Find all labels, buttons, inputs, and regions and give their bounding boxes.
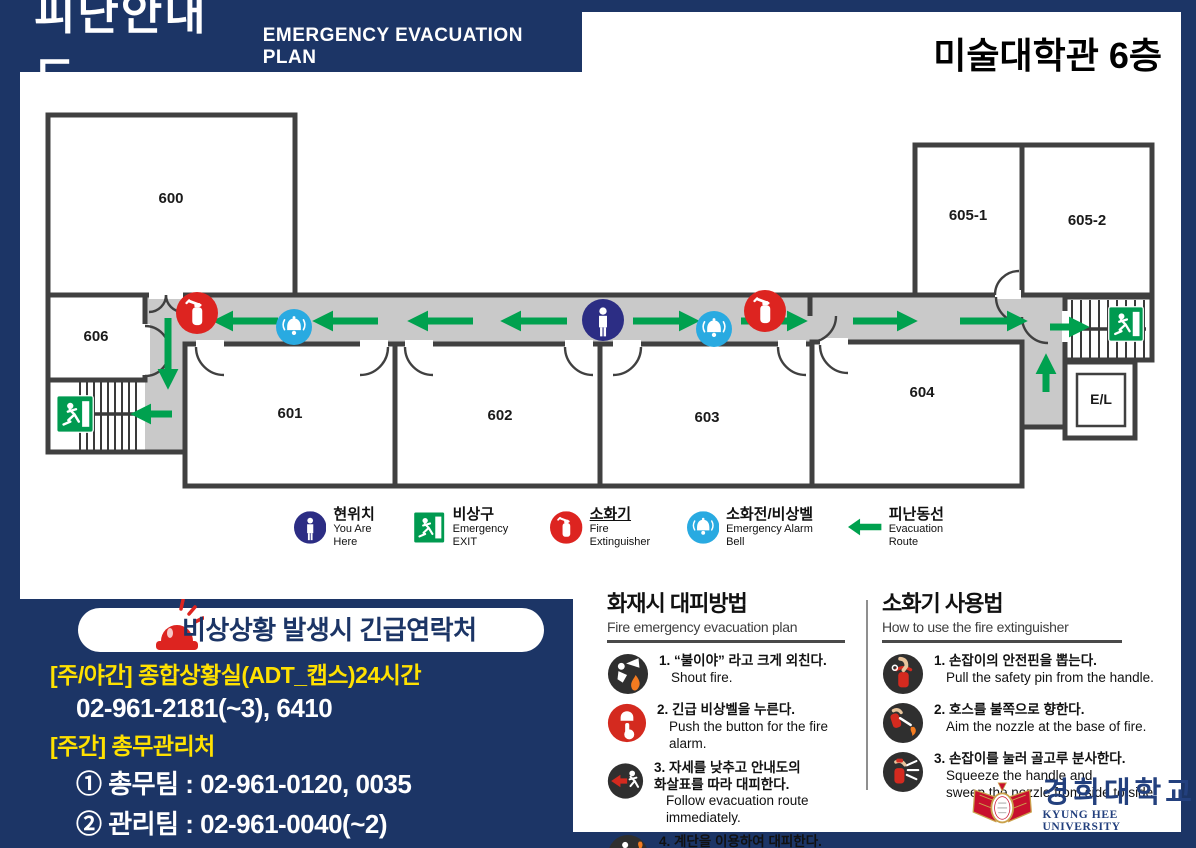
squeeze-sweep-icon <box>882 751 924 793</box>
legend-label-en: Emergency EXIT <box>453 523 535 548</box>
contact-line: [주간] 총무관리처 <box>50 727 573 761</box>
step-text-ko: 2. 호스를 불쪽으로 향한다. <box>934 702 1146 719</box>
fire-extinguisher-icon <box>550 511 582 544</box>
emergency-exit-icon <box>57 396 93 432</box>
you-are-here-icon <box>294 511 326 544</box>
university-name-ko: 경희대학교 <box>1043 778 1196 808</box>
room-label: 600 <box>158 190 183 207</box>
contact-line: ② 관리팀 : 02-961-0040(~2) <box>76 804 573 841</box>
legend-emergency-exit: 비상구 Emergency EXIT <box>413 506 534 549</box>
step-text-en: Pull the safety pin from the handle. <box>946 670 1154 687</box>
university-logo: 경희대학교 KYUNG HEE UNIVERSITY <box>970 778 1196 833</box>
contacts-banner: 비상상황 발생시 긴급연락처 <box>78 608 544 652</box>
elevator-label: E/L <box>1090 391 1112 407</box>
legend-fire-extinguisher: 소화기 Fire Extinguisher <box>550 506 670 549</box>
page-title: 피난안내도 <box>34 0 251 107</box>
alarm-bell-icon <box>687 511 719 544</box>
extinguisher-guide-panel: 소화기 사용법 How to use the fire extinguisher… <box>882 586 1182 809</box>
emergency-exit-icon <box>1109 307 1144 342</box>
fire-plan-title: 화재시 대피방법 <box>607 586 859 618</box>
step-text-ko: 3. 자세를 낮추고 안내도의 화살표를 따라 대피한다. <box>654 760 859 794</box>
university-crest-icon <box>970 778 1035 833</box>
rule-line <box>882 640 1122 643</box>
alarm-bell-icon <box>276 309 312 345</box>
panel-divider <box>866 600 868 790</box>
fire-plan-subtitle: Fire emergency evacuation plan <box>607 619 859 635</box>
contacts-lines: [주/야간] 종합상황실(ADT_캡스)24시간 02-961-2181(~3)… <box>20 653 573 848</box>
legend-label-ko: 현위치 <box>333 506 397 523</box>
room-label: 606 <box>83 328 108 345</box>
emergency-contacts-panel: 비상상황 발생시 긴급연락처 [주/야간] 종합상황실(ADT_캡스)24시간 … <box>20 599 573 848</box>
fire-extinguisher-icon <box>176 292 218 334</box>
evacuation-route-arrow-icon <box>848 517 881 537</box>
step-text-ko: 3. 손잡이를 눌러 골고루 분사한다. <box>934 751 1157 768</box>
contact-line: ① 총무팀 : 02-961-0120, 0035 <box>76 764 573 801</box>
university-name-en: KYUNG HEE UNIVERSITY <box>1043 809 1196 833</box>
you-are-here-icon <box>582 299 624 341</box>
room-label: 605-1 <box>949 207 987 224</box>
legend-evacuation-route: 피난동선 Evacuation Route <box>848 506 974 549</box>
legend-alarm-bell: 소화전/비상벨 Emergency Alarm Bell <box>687 506 833 549</box>
ext-step-2: 2. 호스를 불쪽으로 향한다. Aim the nozzle at the b… <box>882 702 1182 744</box>
fire-step-3: 3. 자세를 낮추고 안내도의 화살표를 따라 대피한다. Follow eva… <box>607 760 859 828</box>
shout-fire-icon <box>607 653 649 695</box>
legend-label-en: Emergency Alarm Bell <box>726 523 832 548</box>
emergency-exit-icon <box>413 511 445 544</box>
fire-extinguisher-icon <box>744 290 786 332</box>
room-label: 601 <box>277 405 302 422</box>
evacuation-plan-poster: 피난안내도 EMERGENCY EVACUATION PLAN 미술대학관 6층 <box>0 0 1196 848</box>
room-604 <box>812 342 1022 486</box>
step-text-en: Shout fire. <box>671 670 827 687</box>
room-label: 604 <box>909 384 935 401</box>
contact-line: [주/야간] 종합상황실(ADT_캡스)24시간 <box>50 656 573 690</box>
contact-line: 02-961-2181(~3), 6410 <box>76 693 573 724</box>
step-text-en: Follow evacuation route immediately. <box>666 793 859 827</box>
floor-plan: 600 606 601 602 603 604 605-1 605-2 E/L <box>30 100 1170 505</box>
rule-line <box>607 640 845 643</box>
follow-route-icon <box>607 760 644 802</box>
push-alarm-icon <box>607 702 647 744</box>
contacts-banner-text: 비상상황 발생시 긴급연락처 <box>182 608 477 652</box>
header-title-box: 피난안내도 EMERGENCY EVACUATION PLAN <box>20 12 582 72</box>
step-text-en: Push the button for the fire alarm. <box>669 719 859 753</box>
room-label: 605-2 <box>1068 212 1106 229</box>
legend-label-ko: 소화전/비상벨 <box>726 506 832 523</box>
fire-plan-panel: 화재시 대피방법 Fire emergency evacuation plan … <box>607 586 859 848</box>
legend-label-en: Evacuation Route <box>889 523 974 548</box>
building-name: 미술대학관 6층 <box>700 27 1162 79</box>
step-text-ko: 1. 손잡이의 안전핀을 뽑는다. <box>934 653 1154 670</box>
fire-step-4: 4. 계단을 이용하여 대피한다. Evacucuate through the… <box>607 834 859 848</box>
fire-step-2: 2. 긴급 비상벨을 누른다. Push the button for the … <box>607 702 859 753</box>
legend-label-ko: 소화기 <box>590 506 671 523</box>
legend: 현위치 You Are Here 비상구 Emergency EXIT 소화기 … <box>294 501 974 553</box>
room-label: 603 <box>694 409 719 426</box>
page-subtitle: EMERGENCY EVACUATION PLAN <box>263 15 582 69</box>
fire-step-1: 1. “불이야” 라고 크게 외친다. Shout fire. <box>607 653 859 695</box>
ext-step-1: 1. 손잡이의 안전핀을 뽑는다. Pull the safety pin fr… <box>882 653 1182 695</box>
ext-guide-subtitle: How to use the fire extinguisher <box>882 619 1182 635</box>
step-text-ko: 2. 긴급 비상벨을 누른다. <box>657 702 859 719</box>
step-text-ko: 4. 계단을 이용하여 대피한다. <box>659 834 853 848</box>
ext-guide-title: 소화기 사용법 <box>882 586 1182 618</box>
legend-label-ko: 피난동선 <box>889 506 974 523</box>
step-text-ko: 1. “불이야” 라고 크게 외친다. <box>659 653 827 670</box>
contact-line: ③ 안전팀 : 02-961-0119 <box>76 844 573 848</box>
pull-pin-icon <box>882 653 924 695</box>
legend-you-are-here: 현위치 You Are Here <box>294 506 397 549</box>
legend-label-ko: 비상구 <box>453 506 535 523</box>
legend-label-en: You Are Here <box>333 523 397 548</box>
aim-nozzle-icon <box>882 702 924 744</box>
use-stairs-icon <box>607 834 649 848</box>
alarm-bell-icon <box>696 311 732 347</box>
legend-label-en: Fire Extinguisher <box>590 523 671 548</box>
step-text-en: Aim the nozzle at the base of fire. <box>946 719 1146 736</box>
room-label: 602 <box>487 407 512 424</box>
